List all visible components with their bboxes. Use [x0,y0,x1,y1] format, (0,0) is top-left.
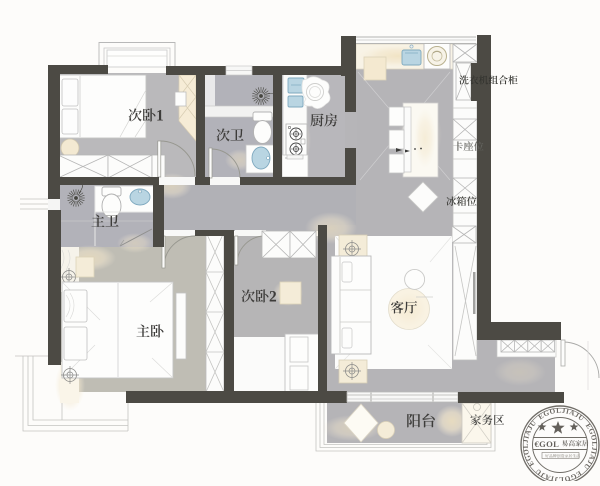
svg-text:1: 1 [156,107,164,124]
svg-text:€GOL: €GOL [535,439,560,449]
svg-text:2: 2 [269,288,277,305]
